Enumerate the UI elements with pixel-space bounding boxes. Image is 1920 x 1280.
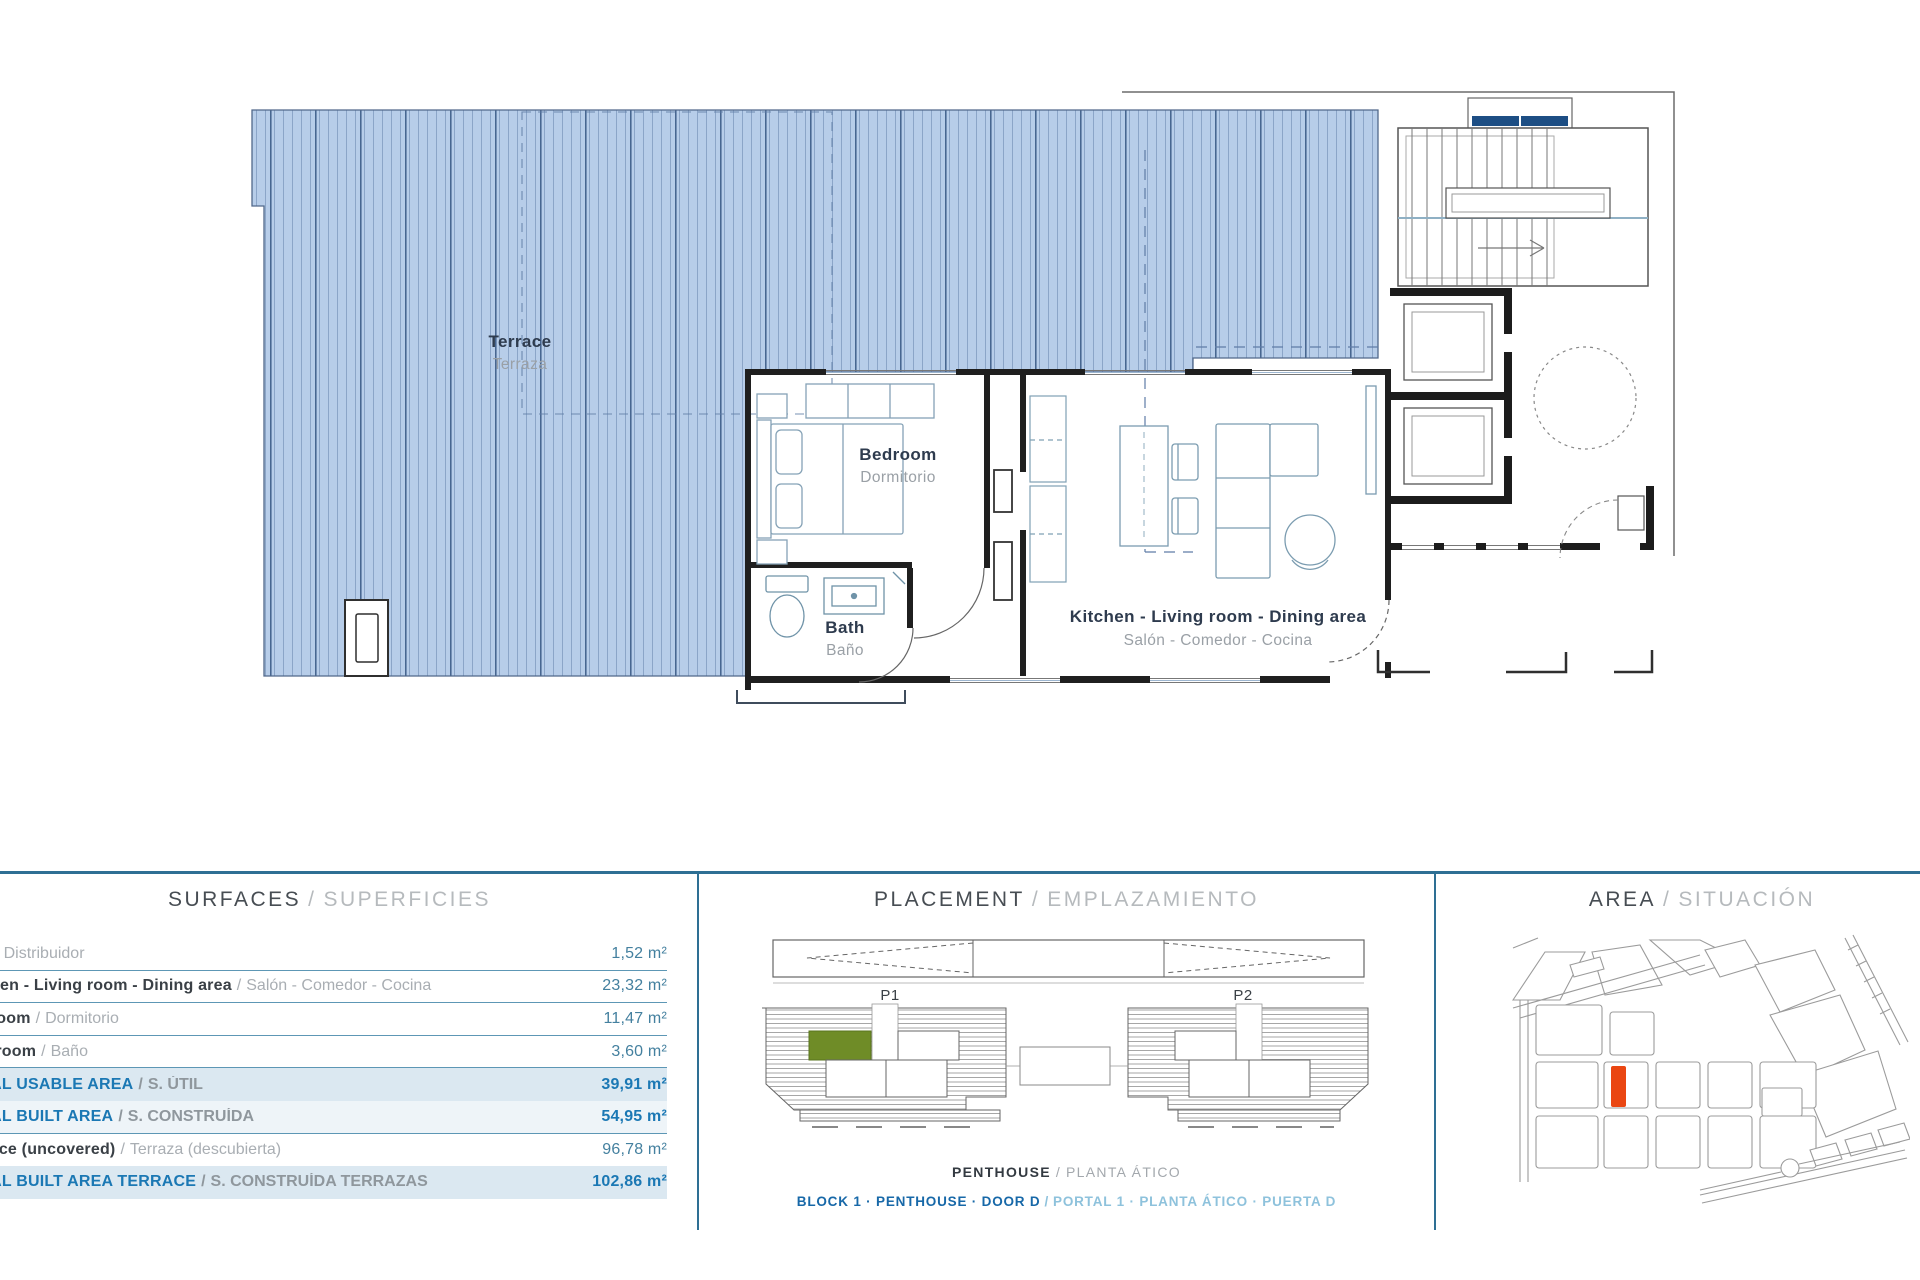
row-label-es: S. CONSTRUÍDA [128,1108,254,1125]
block-p2 [1128,1004,1368,1127]
area-title-es: SITUACIÓN [1678,888,1815,911]
row-label-en: TOTAL BUILT AREA TERRACE [0,1173,196,1190]
kitchen-counter [1030,396,1066,582]
row-value: 39,91 m² [601,1076,667,1094]
terrace-label-es: Terraza [493,356,547,373]
roof-bar [773,940,1364,983]
bedroom-label-en: Bedroom [859,445,936,464]
kitchen-label-es: Salón - Comedor - Cocina [1124,632,1313,649]
row-value: 11,47 m² [603,1010,667,1028]
row-label-en: TOTAL BUILT AREA [0,1108,113,1125]
row-label-en: Bathroom [0,1043,36,1060]
bath-label-en: Bath [825,618,864,637]
table-row: Terrace (uncovered)/Terraza (descubierta… [0,1134,667,1167]
floor-es: PLANTA ÁTICO [1066,1164,1181,1180]
row-label-es: Terraza (descubierta) [130,1141,281,1158]
surfaces-panel: SURFACES/SUPERFICIES Hall/Distribuidor 1… [0,874,697,1236]
area-title-en: AREA [1589,888,1656,911]
row-label-es: Salón - Comedor - Cocina [246,977,431,994]
table-row: Kitchen - Living room - Dining area/Saló… [0,971,667,1004]
placement-title-en: PLACEMENT [874,888,1025,911]
row-label-en: TOTAL USABLE AREA [0,1076,133,1093]
placement-title-es: EMPLAZAMIENTO [1047,888,1259,911]
row-separator: / [113,1108,127,1125]
row-label-es: Distribuidor [4,945,85,962]
panel-divider-right [1434,874,1436,1230]
unit-designation: BLOCK 1 · PENTHOUSE · DOOR D/PORTAL 1 · … [699,1194,1434,1209]
row-value: 54,95 m² [601,1108,667,1126]
block-p1 [762,1004,1006,1127]
row-separator: / [133,1076,147,1093]
highlighted-unit [809,1031,871,1060]
table-row: Bathroom/Baño 3,60 m² [0,1036,667,1069]
row-value: 23,32 m² [602,977,667,995]
floor-en: PENTHOUSE [952,1164,1051,1180]
turning-circle-dashed [1534,347,1636,449]
table-row-total-usable: TOTAL USABLE AREA/S. ÚTIL 39,91 m² [0,1068,667,1101]
unit-separator: / [1040,1194,1053,1209]
unit-en: BLOCK 1 · PENTHOUSE · DOOR D [797,1194,1041,1209]
surfaces-table: Hall/Distribuidor 1,52 m² Kitchen - Livi… [0,938,667,1199]
title-separator: / [1025,888,1047,911]
kitchen-label-en: Kitchen - Living room - Dining area [1070,607,1367,626]
floor-designation: PENTHOUSE/PLANTA ÁTICO [699,1164,1434,1180]
center-core [1020,1047,1110,1085]
floor-plan: Terrace Terraza Bedroom Dormitorio Bath … [0,0,1920,872]
surfaces-title: SURFACES/SUPERFICIES [0,888,697,912]
area-title: AREA/SITUACIÓN [1490,888,1914,912]
lower-floor-edges [1378,650,1652,672]
dining-set [1120,426,1198,546]
row-label-en: Bedroom [0,1010,31,1027]
bedroom-label-es: Dormitorio [860,469,935,486]
terrace-label-en: Terrace [489,332,552,351]
placement-diagram: P1 P2 [699,918,1434,1160]
table-row-total-built: TOTAL BUILT AREA/S. CONSTRUÍDA 54,95 m² [0,1101,667,1134]
portal-2-label: P2 [1233,987,1252,1004]
sofa-set [1216,386,1376,578]
elevators [1390,288,1512,504]
placement-title: PLACEMENT/EMPLAZAMIENTO [699,888,1434,912]
row-separator: / [36,1043,50,1060]
row-label-es: S. ÚTIL [148,1076,203,1093]
table-row-total-terrace: TOTAL BUILT AREA TERRACE/S. CONSTRUÍDA T… [0,1166,667,1199]
title-separator: / [301,888,323,911]
surfaces-title-es: SUPERFICIES [324,888,492,911]
stairwell [1398,98,1648,286]
row-label-es: Baño [51,1043,88,1060]
table-row: Bedroom/Dormitorio 11,47 m² [0,1003,667,1036]
row-label-en: Kitchen - Living room - Dining area [0,977,232,994]
balcony-edge [737,690,905,703]
row-label-es: Dormitorio [45,1010,119,1027]
bath-label-es: Baño [826,642,864,659]
row-value: 1,52 m² [611,945,667,963]
row-value: 96,78 m² [602,1141,667,1159]
roundabout [1781,1159,1799,1177]
row-separator: / [232,977,246,994]
surfaces-title-en: SURFACES [168,888,301,911]
row-separator: / [196,1173,210,1190]
title-separator: / [1656,888,1678,911]
corridor-closets [994,470,1012,600]
row-separator: / [31,1010,45,1027]
unit-es: PORTAL 1 · PLANTA ÁTICO · PUERTA D [1053,1194,1336,1209]
portal-1-label: P1 [880,987,899,1004]
terrace-post [345,600,388,676]
row-separator: / [115,1141,129,1158]
location-map [1500,932,1910,1220]
floor-separator: / [1051,1164,1066,1180]
row-value: 3,60 m² [611,1043,667,1061]
table-row: Hall/Distribuidor 1,52 m² [0,938,667,971]
row-label-en: Terrace (uncovered) [0,1141,115,1158]
row-label-es: S. CONSTRUÍDA TERRAZAS [211,1173,428,1190]
row-value: 102,86 m² [592,1173,667,1191]
site-marker [1611,1066,1626,1107]
